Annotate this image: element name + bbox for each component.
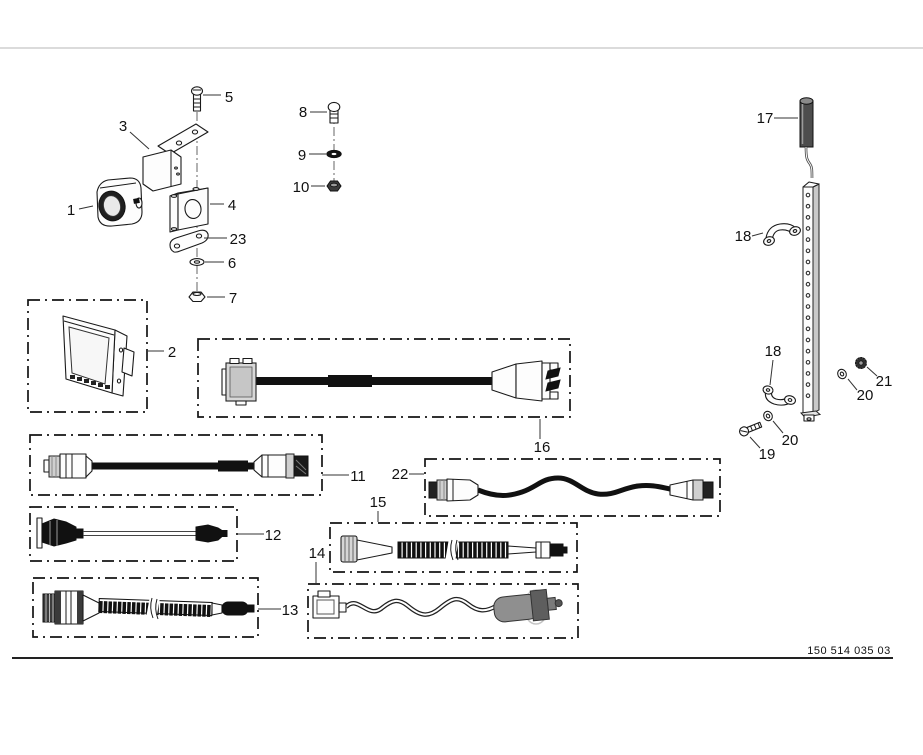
callout-3: 3 — [119, 118, 127, 135]
callout-4: 4 — [228, 197, 236, 214]
callout-13: 13 — [282, 602, 299, 619]
callout-labels: 1 2 3 4 5 6 7 8 9 10 11 12 13 14 15 16 1… — [67, 89, 893, 619]
cable-11-box — [30, 435, 322, 495]
callout-1: 1 — [67, 202, 75, 219]
washer-20-upper-part — [836, 368, 848, 380]
callout-5: 5 — [225, 89, 233, 106]
cable-22-part — [429, 478, 713, 501]
callout-22: 22 — [392, 466, 409, 483]
washer-9-part — [327, 150, 341, 157]
callout-21: 21 — [876, 373, 893, 390]
callout-18-lower: 18 — [765, 343, 782, 360]
washer-6-part — [190, 259, 204, 266]
screw-5-part — [192, 87, 203, 111]
cable-15-box — [330, 523, 577, 572]
callout-16: 16 — [534, 439, 551, 456]
clamp-18-upper-part — [762, 224, 801, 247]
antenna-wire — [806, 147, 812, 178]
cable-16-box — [198, 339, 570, 417]
callout-9: 9 — [298, 147, 306, 164]
cable-13-box — [33, 578, 258, 637]
nut-7-part — [189, 292, 205, 302]
callout-2: 2 — [168, 344, 176, 361]
plate-23-part — [170, 230, 208, 252]
diagram-canvas: 1 2 3 4 5 6 7 8 9 10 11 12 13 14 15 16 1… — [0, 0, 923, 755]
cable-16-part — [222, 359, 560, 406]
callout-17: 17 — [757, 110, 774, 127]
cable-14-part — [313, 588, 564, 625]
cable-12-part — [37, 518, 227, 548]
nut-10-part — [327, 181, 341, 191]
lightbar-17-part — [801, 182, 820, 421]
cable-22-box — [425, 459, 720, 516]
screw-19-part — [738, 420, 762, 437]
bracket-3-part — [143, 124, 208, 191]
monitor-2-part — [63, 316, 134, 396]
lightbar-assembly — [738, 98, 866, 437]
cable-13-part — [43, 591, 254, 624]
callout-15: 15 — [370, 494, 387, 511]
callout-12: 12 — [265, 527, 282, 544]
fastener-set-8-9-10 — [327, 102, 341, 191]
footer: 150 514 035 03 — [12, 645, 893, 658]
callout-14: 14 — [309, 545, 326, 562]
callout-6: 6 — [228, 255, 236, 272]
callout-23: 23 — [230, 231, 247, 248]
washer-20-lower-part — [762, 410, 774, 422]
screw-8-part — [328, 102, 340, 123]
callout-20-upper: 20 — [857, 387, 874, 404]
camera-1-part — [96, 178, 142, 226]
cable-12-box — [30, 507, 237, 561]
clamp-18-lower-part — [762, 385, 796, 405]
callout-11: 11 — [350, 468, 366, 485]
clamp-block-4-part — [170, 188, 208, 232]
camera-assembly — [96, 87, 208, 302]
cable-11-part — [44, 454, 308, 478]
cable-15-part — [341, 536, 567, 562]
callout-20-lower: 20 — [782, 432, 799, 449]
callout-19: 19 — [759, 446, 776, 463]
callout-7: 7 — [229, 290, 237, 307]
callout-10: 10 — [293, 179, 310, 196]
callout-8: 8 — [299, 104, 307, 121]
cable-14-box — [308, 584, 578, 638]
antenna-rod-17-part — [800, 98, 813, 147]
nut-21-part — [856, 358, 867, 369]
drawing-number: 150 514 035 03 — [807, 645, 890, 657]
monitor-box — [28, 300, 147, 412]
parts-diagram-page: 1 2 3 4 5 6 7 8 9 10 11 12 13 14 15 16 1… — [0, 0, 923, 755]
callout-18-upper: 18 — [735, 228, 752, 245]
